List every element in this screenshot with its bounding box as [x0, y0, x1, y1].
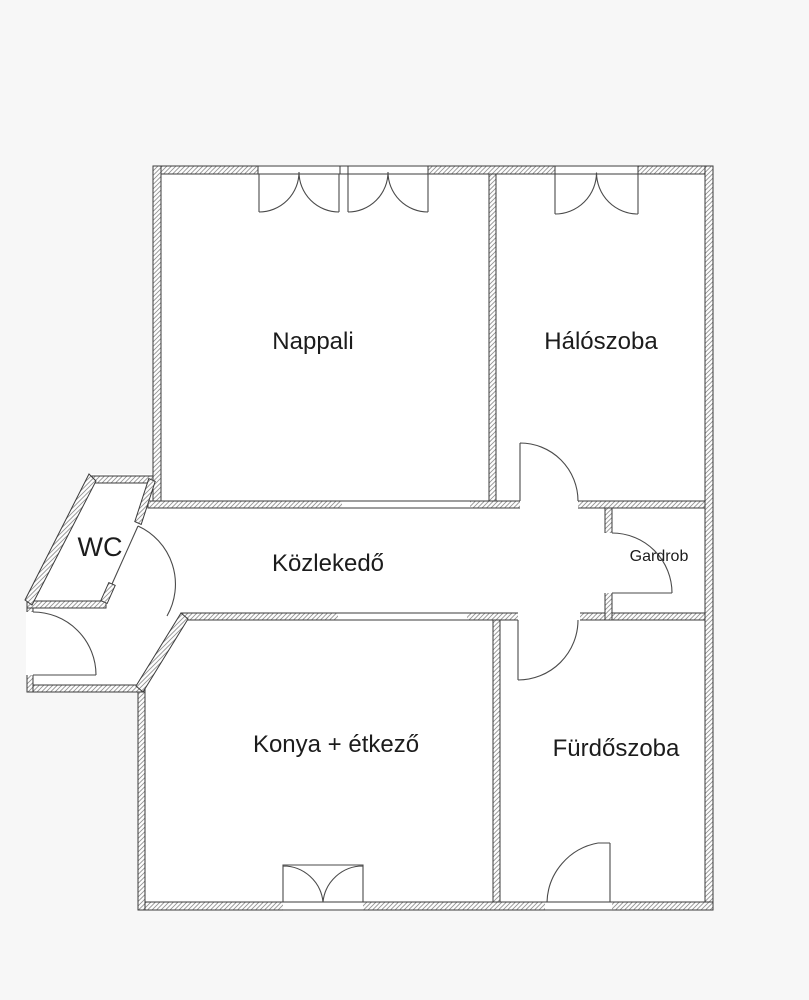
wall-exterior-left	[153, 166, 161, 508]
room-label-kozlekedo: Közlekedő	[272, 550, 384, 577]
room-label-gardrob: Gardrob	[630, 548, 689, 565]
wall-wc-top	[92, 476, 153, 483]
wall-entry-bottom	[27, 685, 145, 692]
room-label-wc: WC	[78, 532, 123, 562]
room-label-haloszoba: Hálószoba	[544, 328, 658, 355]
floor-plan-drawing: Nappali Hálószoba WC Közlekedő Gardrob K…	[0, 0, 809, 1000]
wall-kitchen-bathroom	[493, 620, 500, 902]
wall-kitchen-left	[138, 686, 145, 910]
room-label-nappali: Nappali	[272, 328, 353, 355]
opening-gardrob-door	[604, 533, 613, 593]
opening-bathroom-door	[518, 612, 580, 621]
wall-wc-bottom	[27, 601, 106, 608]
wall-exterior-bottom	[138, 902, 713, 910]
opening-entry-door	[26, 612, 34, 675]
room-label-konya-etkezo: Konya + étkező	[253, 731, 419, 758]
opening-bedroom-door	[520, 500, 578, 509]
room-label-furdoszoba: Fürdőszoba	[553, 735, 680, 762]
wall-exterior-right	[705, 166, 713, 910]
floorplan-page: Nappali Hálószoba WC Közlekedő Gardrob K…	[0, 0, 809, 1000]
wall-livingroom-bedroom	[489, 174, 496, 501]
